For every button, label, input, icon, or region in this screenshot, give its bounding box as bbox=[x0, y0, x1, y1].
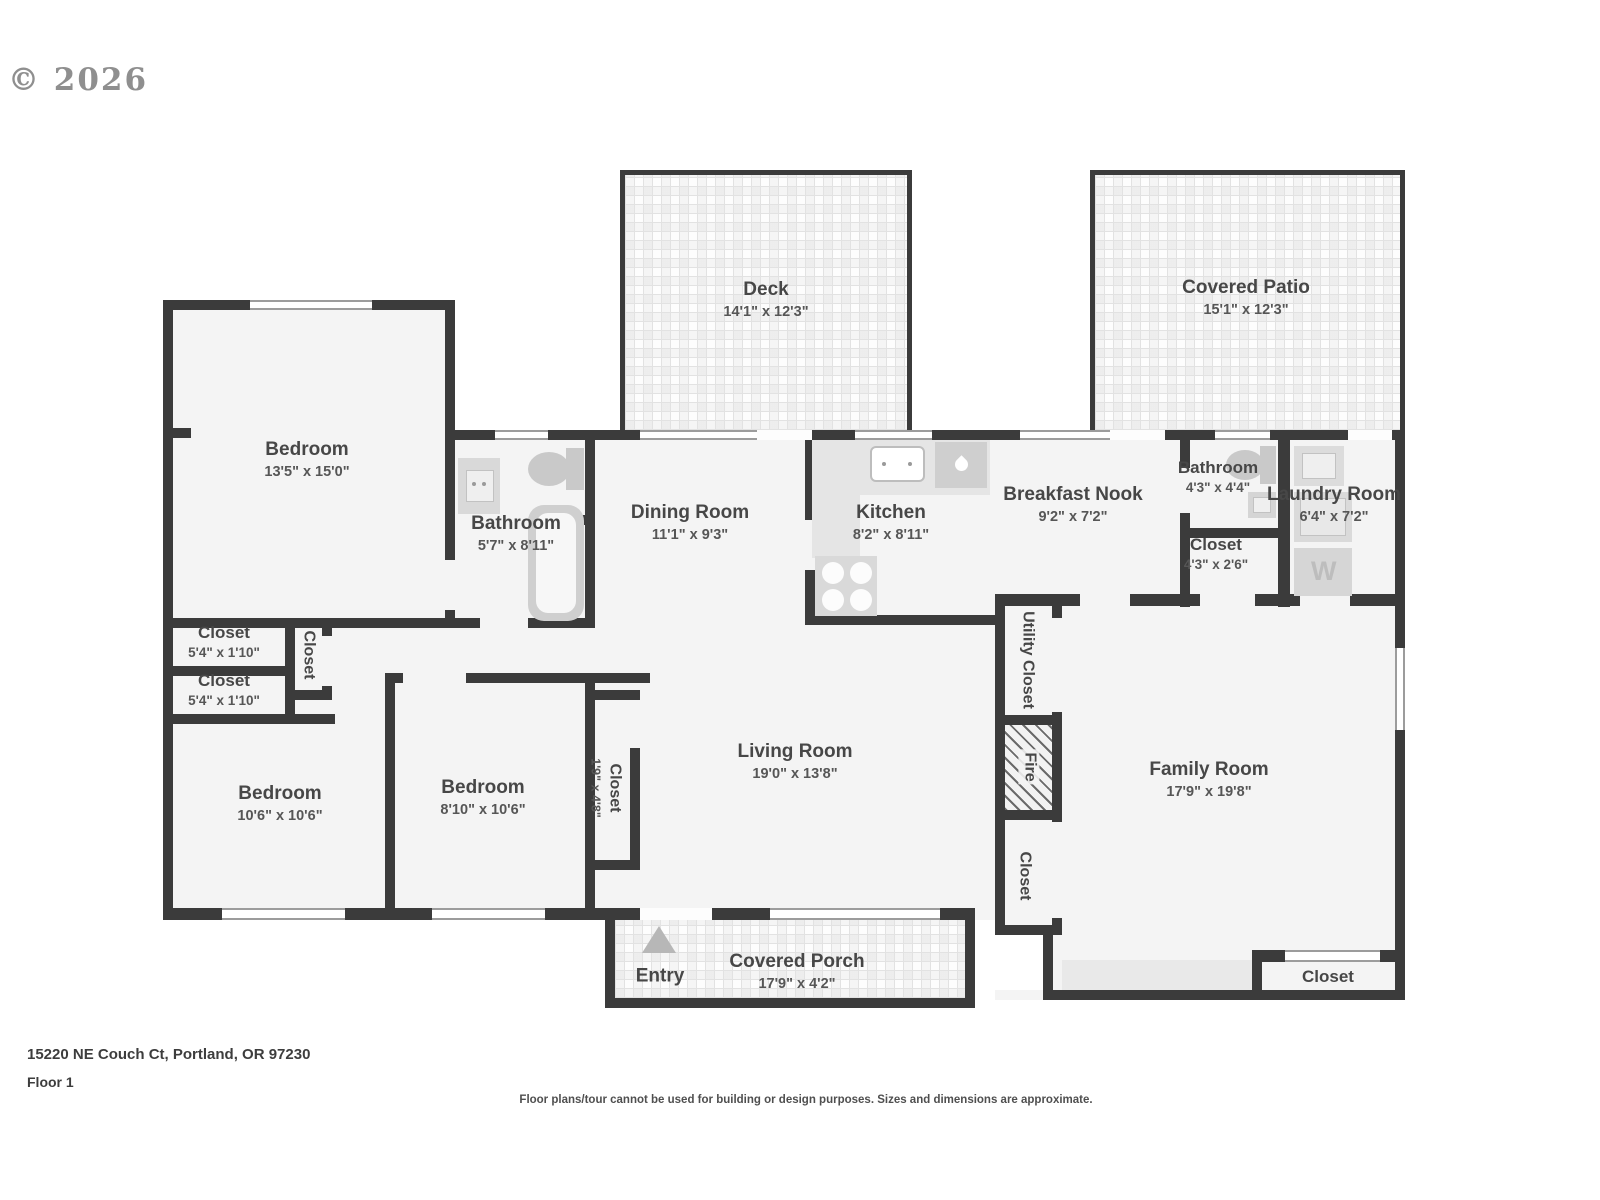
room-name: Bedroom bbox=[237, 782, 322, 807]
room-label-bathroom-main: Bathroom 5'7" x 8'11" bbox=[471, 512, 561, 556]
door-opening bbox=[1348, 430, 1392, 440]
door-opening bbox=[335, 714, 385, 724]
burner-icon bbox=[850, 562, 872, 584]
room-name: Bathroom bbox=[471, 512, 561, 537]
wall bbox=[965, 908, 975, 1008]
room-name: Fire bbox=[1019, 749, 1040, 784]
window bbox=[250, 300, 372, 310]
room-label-living-room: Living Room 19'0" x 13'8" bbox=[737, 740, 852, 784]
room-dims: 6'4" x 7'2" bbox=[1267, 508, 1401, 527]
room-name: Laundry Room bbox=[1267, 483, 1401, 508]
faucet-dot bbox=[482, 482, 486, 486]
door-opening bbox=[403, 673, 466, 683]
room-label-closet-bedroom3: Closet 1'9" x 4'8" bbox=[587, 758, 624, 818]
toilet-bowl-icon bbox=[528, 452, 570, 486]
room-name: Family Room bbox=[1149, 758, 1268, 783]
kitchen-sink-icon bbox=[870, 446, 925, 482]
door-opening bbox=[322, 636, 332, 686]
room-label-closet-south: Closet bbox=[1014, 852, 1035, 901]
room-name: Closet bbox=[188, 670, 260, 692]
wall bbox=[805, 570, 815, 625]
wall bbox=[1052, 594, 1062, 618]
wall bbox=[995, 925, 1062, 935]
sink-basin-icon bbox=[466, 470, 494, 502]
room-dims: 14'1" x 12'3" bbox=[723, 303, 808, 322]
sink-dot bbox=[882, 462, 886, 466]
room-label-closet-vertical: Closet bbox=[298, 631, 319, 680]
room-dims: 17'9" x 4'2" bbox=[729, 975, 864, 994]
wall bbox=[1043, 990, 1405, 1000]
room-name: Closet bbox=[1184, 534, 1248, 556]
floor-label: Floor 1 bbox=[27, 1074, 74, 1090]
room-dims: 15'1" x 12'3" bbox=[1182, 301, 1310, 320]
room-label-closet-upper: Closet 5'4" x 1'10" bbox=[188, 622, 260, 662]
room-dims: 5'7" x 8'11" bbox=[471, 537, 561, 556]
room-name: Covered Porch bbox=[729, 950, 864, 975]
door-opening bbox=[757, 430, 812, 440]
room-name: Kitchen bbox=[853, 501, 929, 526]
window bbox=[770, 908, 940, 920]
washer-letter: W bbox=[1311, 556, 1336, 587]
faucet-dot bbox=[472, 482, 476, 486]
room-dims: 13'5" x 15'0" bbox=[264, 463, 349, 482]
door-opening bbox=[630, 700, 640, 748]
wall bbox=[805, 615, 995, 625]
toilet-icon bbox=[566, 448, 584, 490]
window bbox=[432, 908, 545, 920]
room-dims: 4'3" x 2'6" bbox=[1184, 556, 1248, 574]
room-name: Closet bbox=[188, 622, 260, 644]
room-label-covered-patio: Covered Patio 15'1" x 12'3" bbox=[1182, 276, 1310, 320]
room-dims: 8'2" x 8'11" bbox=[853, 526, 929, 545]
property-address: 15220 NE Couch Ct, Portland, OR 97230 bbox=[27, 1046, 310, 1063]
room-label-utility-closet: Utility Closet bbox=[1017, 611, 1038, 709]
wall bbox=[285, 618, 295, 724]
room-dims: 1'9" x 4'8" bbox=[587, 758, 603, 818]
floor-plan: © 2026 15220 NE Couch Ct, Portland, OR 9… bbox=[0, 0, 1600, 1200]
room-name: Bathroom bbox=[1178, 457, 1258, 479]
window bbox=[1020, 430, 1110, 440]
wall bbox=[1043, 925, 1053, 1000]
room-name: Dining Room bbox=[631, 501, 749, 526]
room-label-kitchen: Kitchen 8'2" x 8'11" bbox=[853, 501, 929, 545]
room-label-covered-porch: Covered Porch 17'9" x 4'2" bbox=[729, 950, 864, 994]
entry-arrow-icon bbox=[642, 926, 676, 953]
sink-dot bbox=[908, 462, 912, 466]
door-opening bbox=[640, 908, 712, 920]
room-name: Living Room bbox=[737, 740, 852, 765]
room-dims: 8'10" x 10'6" bbox=[440, 801, 525, 820]
room-label-fireplace: Fire bbox=[1019, 749, 1040, 784]
room-dims: 10'6" x 10'6" bbox=[237, 807, 322, 826]
window bbox=[640, 430, 757, 440]
disclaimer-text: Floor plans/tour cannot be used for buil… bbox=[519, 1094, 1092, 1106]
door-opening bbox=[480, 618, 528, 628]
room-label-bathroom-half: Bathroom 4'3" x 4'4" bbox=[1178, 457, 1258, 497]
door-opening bbox=[1110, 430, 1165, 440]
window bbox=[222, 908, 345, 920]
room-name: Closet bbox=[1014, 852, 1035, 901]
room-dims: 17'9" x 19'8" bbox=[1149, 783, 1268, 802]
room-label-bedroom-master: Bedroom 13'5" x 15'0" bbox=[264, 438, 349, 482]
room-label-dining-room: Dining Room 11'1" x 9'3" bbox=[631, 501, 749, 545]
room-name: Closet bbox=[604, 758, 625, 818]
window bbox=[855, 430, 932, 440]
room-dims: 19'0" x 13'8" bbox=[737, 765, 852, 784]
room-name: Bedroom bbox=[440, 776, 525, 801]
burner-icon bbox=[822, 589, 844, 611]
wall bbox=[173, 428, 191, 438]
room-label-closet-laundry: Closet 4'3" x 2'6" bbox=[1184, 534, 1248, 574]
window bbox=[1395, 648, 1405, 730]
wall bbox=[605, 998, 975, 1008]
room-name: Closet bbox=[298, 631, 319, 680]
window bbox=[495, 430, 548, 440]
toilet-icon bbox=[1260, 446, 1276, 484]
wall bbox=[1252, 950, 1262, 990]
room-dims: 11'1" x 9'3" bbox=[631, 526, 749, 545]
room-name: Breakfast Nook bbox=[1003, 483, 1142, 508]
room-label-family-room: Family Room 17'9" x 19'8" bbox=[1149, 758, 1268, 802]
wall bbox=[995, 606, 1005, 935]
room-name: Entry bbox=[636, 965, 685, 990]
door-opening bbox=[1080, 594, 1130, 606]
room-label-closet-family: Closet bbox=[1302, 966, 1354, 988]
room-dims: 5'4" x 1'10" bbox=[188, 692, 260, 710]
room-label-bedroom-2: Bedroom 10'6" x 10'6" bbox=[237, 782, 322, 826]
exterior-notch bbox=[995, 935, 1043, 990]
room-dims: 4'3" x 4'4" bbox=[1178, 479, 1258, 497]
sink-basin-icon bbox=[1302, 453, 1336, 479]
door-opening bbox=[1200, 594, 1255, 606]
room-name: Utility Closet bbox=[1017, 611, 1038, 709]
wall bbox=[585, 430, 595, 628]
room-area bbox=[163, 300, 455, 920]
room-label-closet-lower: Closet 5'4" x 1'10" bbox=[188, 670, 260, 710]
room-dims: 5'4" x 1'10" bbox=[188, 644, 260, 662]
room-name: Bedroom bbox=[264, 438, 349, 463]
room-label-breakfast-nook: Breakfast Nook 9'2" x 7'2" bbox=[1003, 483, 1142, 527]
burner-icon bbox=[822, 562, 844, 584]
door-opening bbox=[445, 560, 455, 610]
room-name: Deck bbox=[723, 278, 808, 303]
room-label-bedroom-3: Bedroom 8'10" x 10'6" bbox=[440, 776, 525, 820]
copyright-watermark: © 2026 bbox=[8, 62, 148, 98]
room-label-laundry-room: Laundry Room 6'4" x 7'2" bbox=[1267, 483, 1401, 527]
wall bbox=[385, 683, 395, 920]
room-label-deck: Deck 14'1" x 12'3" bbox=[723, 278, 808, 322]
hearth-strip bbox=[1062, 960, 1252, 990]
window bbox=[1285, 950, 1380, 962]
room-label-entry: Entry bbox=[636, 965, 685, 990]
wall bbox=[605, 908, 615, 1008]
window bbox=[1215, 430, 1270, 440]
wall bbox=[285, 690, 332, 700]
burner-icon bbox=[850, 589, 872, 611]
room-name: Closet bbox=[1302, 966, 1354, 988]
wall bbox=[163, 300, 173, 920]
room-name: Covered Patio bbox=[1182, 276, 1310, 301]
room-dims: 9'2" x 7'2" bbox=[1003, 508, 1142, 527]
wall bbox=[1052, 712, 1062, 822]
